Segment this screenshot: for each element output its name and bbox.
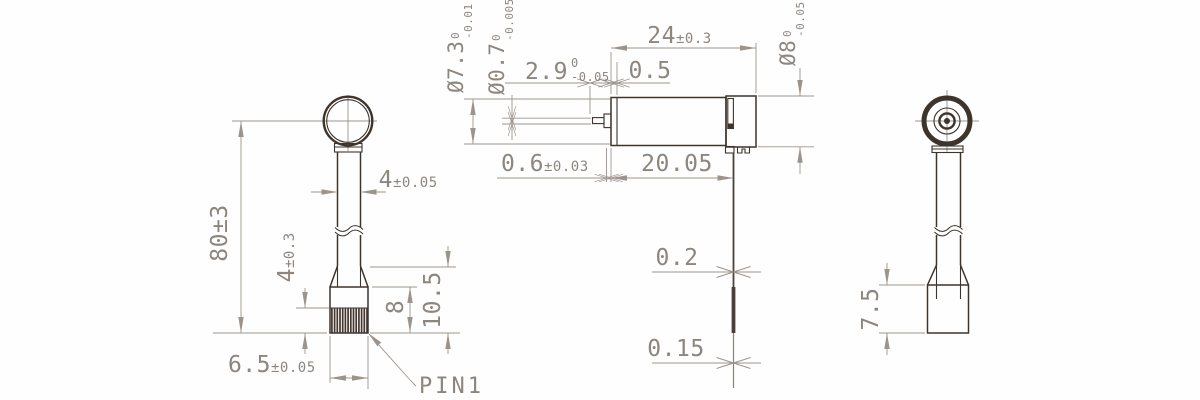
dim-ring-diameter-tol-lower: -0.05 xyxy=(794,1,807,37)
dim-left-cap-thickness-value: 0.6 xyxy=(501,151,544,177)
dim-body-length-text: 20.05 xyxy=(641,151,713,177)
dim-shaft-diameter-tol-lower: -0.005 xyxy=(503,0,516,41)
pin-label: PIN1 xyxy=(419,374,484,399)
motor-body xyxy=(611,98,726,146)
dim-block-height: 8 xyxy=(372,287,417,333)
shaft-center-dot xyxy=(944,118,950,124)
dim-lead-wire-upper-text: 0.2 xyxy=(655,245,698,271)
dim-lead-wire-lower-text: 0.15 xyxy=(647,336,704,362)
dim-ring-diameter-value: Ø8 xyxy=(776,40,800,66)
dim-base-height-text: 10.5 xyxy=(420,271,446,328)
dim-rib-height-tol: ±0.3 xyxy=(282,232,298,268)
dim-rib-height-value: 4 xyxy=(274,268,300,282)
pin-leader: PIN1 xyxy=(366,331,484,399)
pin-ribs xyxy=(332,309,367,333)
pin-stem xyxy=(937,153,961,266)
dim-body-diameter-tol-lower: -0.01 xyxy=(462,3,475,39)
shaft xyxy=(593,118,605,124)
motor-ring xyxy=(726,96,756,147)
dim-stem-width-value: 4 xyxy=(379,167,393,193)
dim-shaft-length-value: 2.9 xyxy=(525,59,568,85)
motor-pin-technical-drawing: 80±3 4 ±0.05 4 ±0.3 xyxy=(0,0,1200,400)
dim-overall-length-text: 80±3 xyxy=(207,204,233,261)
dim-shaft-length-tol-lower: -0.05 xyxy=(571,70,610,84)
dim-overall-length: 80±3 xyxy=(207,121,327,333)
dim-shaft-length-tol-upper: 0 xyxy=(571,56,579,70)
break-symbol xyxy=(935,226,963,236)
dim-base-width-tol: ±0.05 xyxy=(271,360,316,376)
dim-body-diameter-tol-upper: 0 xyxy=(449,32,462,39)
dim-end-cap-width-text: 0.5 xyxy=(628,58,671,84)
pin-base-block xyxy=(928,285,969,333)
left-view: 80±3 4 ±0.05 4 ±0.3 xyxy=(207,95,484,399)
pin-stem xyxy=(338,152,361,266)
dim-stem-width-tol: ±0.05 xyxy=(393,175,438,191)
technical-drawing-page: 80±3 4 ±0.05 4 ±0.3 xyxy=(0,0,1200,400)
center-view: Ø7.3 0 -0.01 Ø0.7 0 -0.005 xyxy=(444,0,814,388)
dim-ring-diameter-tol-upper: 0 xyxy=(781,30,794,37)
dim-ring-diameter: Ø8 0 -0.05 xyxy=(758,1,814,174)
dim-stem-width: 4 ±0.05 xyxy=(311,167,438,195)
dim-lead-wire-upper: 0.2 xyxy=(652,245,761,278)
break-symbol xyxy=(335,226,363,236)
right-view: 7.5 xyxy=(858,90,979,355)
shaft-hub xyxy=(604,114,611,128)
dim-shaft-length-and-cap: 2.9 0 -0.05 0.5 xyxy=(505,56,672,114)
dim-front-base-height: 7.5 xyxy=(858,263,925,355)
lead-wire-thick xyxy=(732,287,736,333)
dim-base-width-value: 6.5 xyxy=(228,352,271,378)
dim-left-cap-thickness-tol: ±0.03 xyxy=(544,159,589,175)
dim-total-length-tol: ±0.3 xyxy=(676,31,712,47)
dim-total-length-value: 24 xyxy=(647,23,676,49)
stem-taper xyxy=(330,266,368,287)
dim-body-diameter-value: Ø7.3 xyxy=(444,40,468,93)
dim-base-width: 6.5 ±0.05 xyxy=(228,336,368,389)
stem-taper xyxy=(928,265,969,285)
dim-lead-wire-lower: 0.15 xyxy=(647,336,761,369)
dim-front-base-height-text: 7.5 xyxy=(858,287,884,330)
dim-shaft-diameter-tol-upper: 0 xyxy=(490,34,503,41)
dim-block-height-text: 8 xyxy=(383,300,409,314)
dim-shaft-diameter-value: Ø0.7 xyxy=(485,42,509,95)
dim-rib-height: 4 ±0.3 xyxy=(274,232,329,354)
dim-body-length: 0.6 ±0.03 20.05 xyxy=(497,148,734,182)
